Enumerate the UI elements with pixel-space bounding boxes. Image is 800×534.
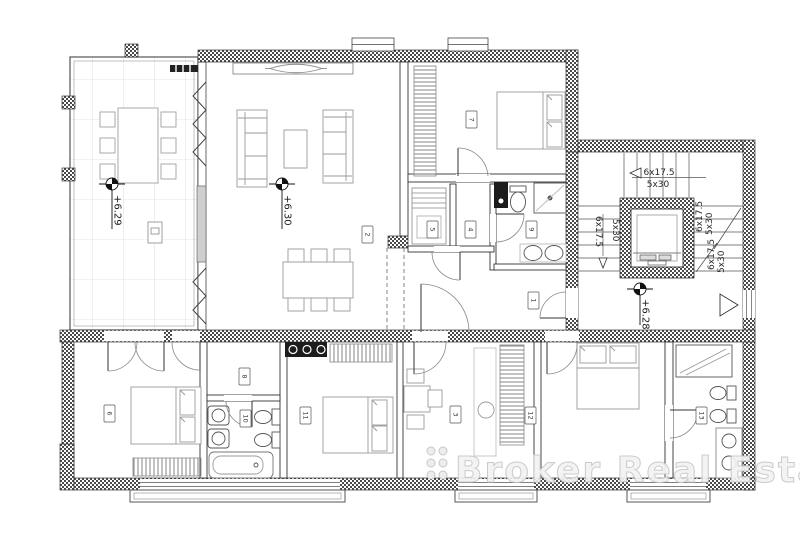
terrace-window	[197, 186, 206, 262]
watermark-text: Broker Real Estate	[455, 450, 800, 491]
terrace-fixture	[148, 222, 162, 243]
room-tag-8: 8	[239, 368, 250, 385]
room-tag-11: 11	[300, 407, 311, 424]
tread-label: 5x30	[717, 250, 727, 273]
level-value: +6.29	[112, 195, 123, 226]
terrace-column	[125, 44, 138, 57]
svg-text:13: 13	[698, 411, 706, 419]
bedroom-bottom-center	[323, 344, 393, 453]
outdoor-dining-set	[100, 108, 176, 183]
riser-label: 6x17.5	[707, 239, 717, 270]
room-tag-1: 1	[528, 292, 539, 309]
room-tag-12: 12	[525, 407, 536, 424]
closet-wardrobe	[500, 345, 524, 445]
room-tag-2: 2	[362, 226, 373, 243]
floor-plan-page: 6x17.5 5x30 6x17.5 5x30 6x17.5 5x30 6x17…	[0, 0, 800, 534]
shower-tray	[534, 183, 566, 213]
svg-text:2: 2	[364, 232, 372, 236]
sofa-left	[237, 110, 267, 187]
side-table	[478, 402, 494, 418]
bed	[497, 92, 565, 149]
svg-text:5: 5	[429, 227, 437, 231]
wardrobe	[414, 66, 436, 176]
svg-text:10: 10	[242, 414, 250, 422]
bed	[131, 387, 201, 444]
svg-text:11: 11	[302, 411, 310, 419]
room-tag-13: 13	[696, 407, 707, 424]
svg-text:3: 3	[452, 412, 460, 416]
terrace-column	[62, 168, 75, 181]
tread-label: 5x30	[647, 180, 670, 190]
svg-text:7: 7	[468, 117, 476, 121]
room-tag-6: 6	[104, 405, 115, 422]
tread-label: 5x30	[705, 212, 715, 235]
elevator	[620, 198, 694, 278]
room-tag-3: 3	[450, 406, 461, 423]
level-value: +6.30	[282, 195, 293, 226]
bed	[323, 397, 393, 453]
svg-text:9: 9	[528, 227, 536, 231]
riser-label: 6x17.5	[695, 201, 705, 232]
shower	[676, 345, 732, 377]
watermark: Broker Real Estate	[427, 447, 800, 491]
room-tag-5: 5	[427, 221, 438, 238]
terrace-column	[62, 96, 75, 109]
dining-table	[283, 249, 353, 311]
lintel-bar	[170, 65, 198, 72]
room-tag-9: 9	[526, 221, 537, 238]
riser-label: 6x17.5	[593, 216, 603, 247]
svg-text:12: 12	[527, 411, 535, 419]
riser-label: 6x17.5	[643, 168, 674, 178]
room-tag-4: 4	[465, 221, 476, 238]
room-tag-10: 10	[240, 410, 251, 427]
bedroom-bottom-right	[577, 343, 639, 409]
sofa-right	[323, 110, 353, 183]
level-value: +6.28	[640, 299, 651, 330]
wardrobe	[330, 344, 392, 362]
double-sink	[520, 244, 566, 262]
bed	[577, 343, 639, 409]
svg-text:6: 6	[106, 411, 114, 415]
tread-label: 5x30	[610, 219, 620, 242]
bedroom-bottom-left	[131, 387, 201, 476]
bathtub	[209, 452, 273, 478]
tv-console	[233, 63, 353, 74]
duct-shaft	[494, 182, 508, 208]
terrace	[62, 44, 198, 330]
svg-text:8: 8	[241, 374, 249, 378]
wardrobe	[133, 458, 201, 476]
room-tag-7: 7	[466, 111, 477, 128]
toilet	[510, 186, 526, 212]
svg-text:1: 1	[530, 298, 538, 302]
svg-text:4: 4	[467, 227, 475, 231]
floor-plan-canvas: 6x17.5 5x30 6x17.5 5x30 6x17.5 5x30 6x17…	[0, 0, 800, 534]
kitchenette	[285, 342, 327, 357]
coffee-table	[284, 130, 307, 168]
